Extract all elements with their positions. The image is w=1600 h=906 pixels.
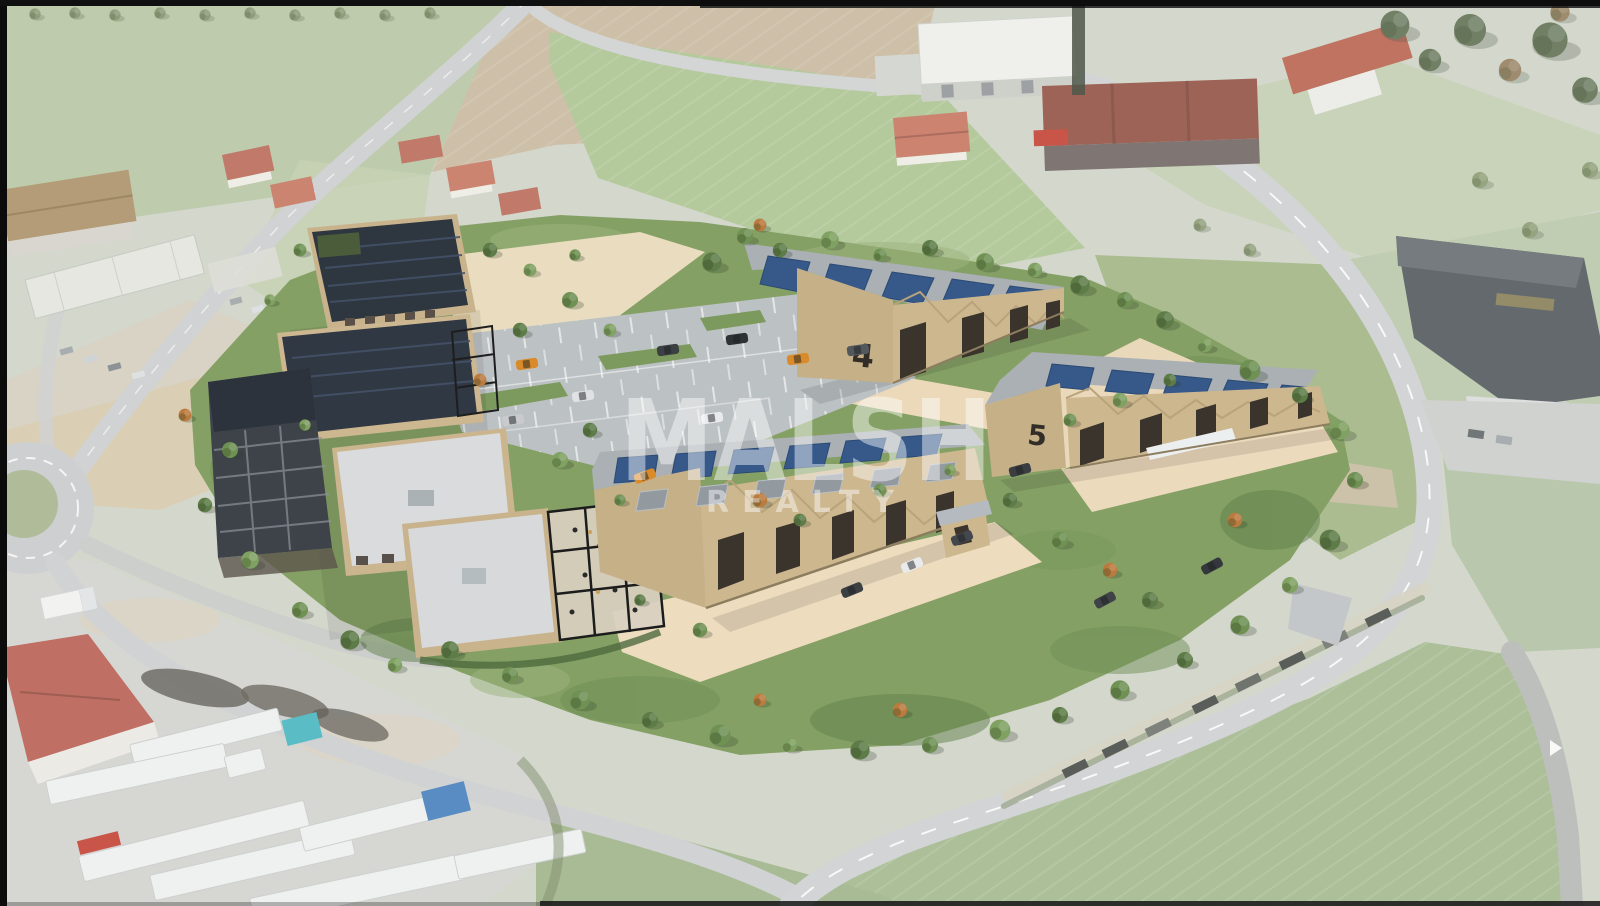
building-5-label: 5: [1026, 418, 1049, 453]
watermark-line1: MALSH: [620, 377, 992, 507]
aerial-render-image: 4 5: [0, 0, 1600, 906]
watermark: MALSH REALTY: [620, 377, 992, 520]
building-4-label: 4: [850, 336, 876, 376]
